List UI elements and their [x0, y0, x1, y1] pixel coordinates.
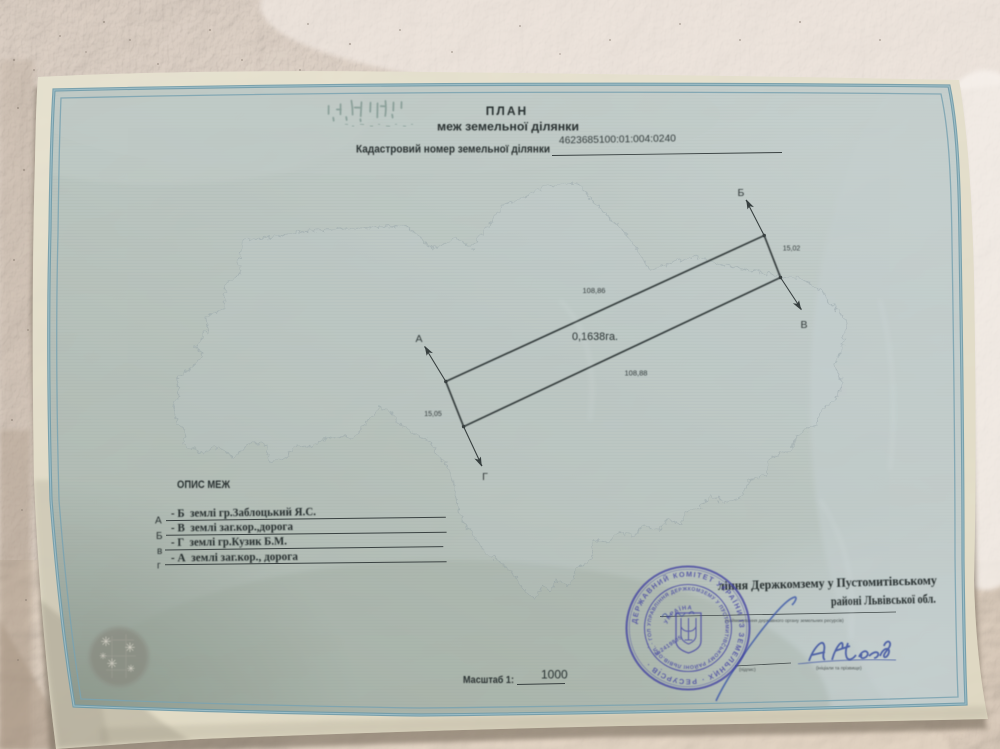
svg-text::: : — [647, 641, 649, 650]
svg-text:в: в — [157, 546, 162, 557]
svg-text:1000: 1000 — [541, 668, 568, 682]
svg-text:- Б землі гр.Заблоцький Я.С.: - Б землі гр.Заблоцький Я.С. — [171, 506, 316, 520]
svg-text:·: · — [660, 665, 663, 674]
svg-text:4623685100:01:004:0240: 4623685100:01:004:0240 — [559, 132, 676, 146]
svg-text:·: · — [649, 605, 652, 614]
svg-text:✳: ✳ — [101, 634, 112, 649]
svg-text:меж земельної ділянки: меж земельної ділянки — [437, 120, 579, 134]
svg-text:108,86: 108,86 — [583, 286, 606, 295]
svg-text:Масштаб 1:: Масштаб 1: — [463, 674, 514, 686]
svg-text:г: г — [157, 561, 161, 572]
svg-text:·: · — [712, 667, 715, 676]
svg-text:районі Львівської обл.: районі Львівської обл. — [831, 592, 936, 609]
svg-text:(підпис): (підпис) — [739, 667, 756, 672]
svg-text:0,1638га.: 0,1638га. — [572, 331, 618, 343]
svg-text:ПЛАН: ПЛАН — [486, 104, 528, 118]
svg-text:- Г землі гр.Кузик Б.М.: - Г землі гр.Кузик Б.М. — [171, 536, 287, 549]
svg-text:Б: Б — [156, 531, 163, 542]
svg-text:В: В — [800, 319, 807, 331]
svg-text:·: · — [723, 605, 726, 614]
svg-text:Б: Б — [738, 187, 745, 199]
svg-text:108,88: 108,88 — [625, 369, 648, 378]
svg-text:А: А — [415, 333, 422, 345]
svg-text:Г: Г — [482, 471, 488, 483]
svg-text:Кадастровий номер земельної ді: Кадастровий номер земельної ділянки — [356, 144, 550, 156]
svg-text:15,05: 15,05 — [424, 411, 442, 418]
svg-text:- В землі заг.кор.,дорога: - В землі заг.кор.,дорога — [171, 521, 293, 534]
svg-text:ОПИС МЕЖ: ОПИС МЕЖ — [177, 479, 230, 491]
svg-text:А: А — [155, 516, 162, 527]
svg-text:15,02: 15,02 — [783, 246, 801, 253]
svg-text:- А землі заг.кор., дорога: - А землі заг.кор., дорога — [171, 551, 298, 565]
svg-text::: : — [725, 643, 727, 652]
svg-text:(ініціали та прізвище): (ініціали та прізвище) — [816, 666, 862, 671]
